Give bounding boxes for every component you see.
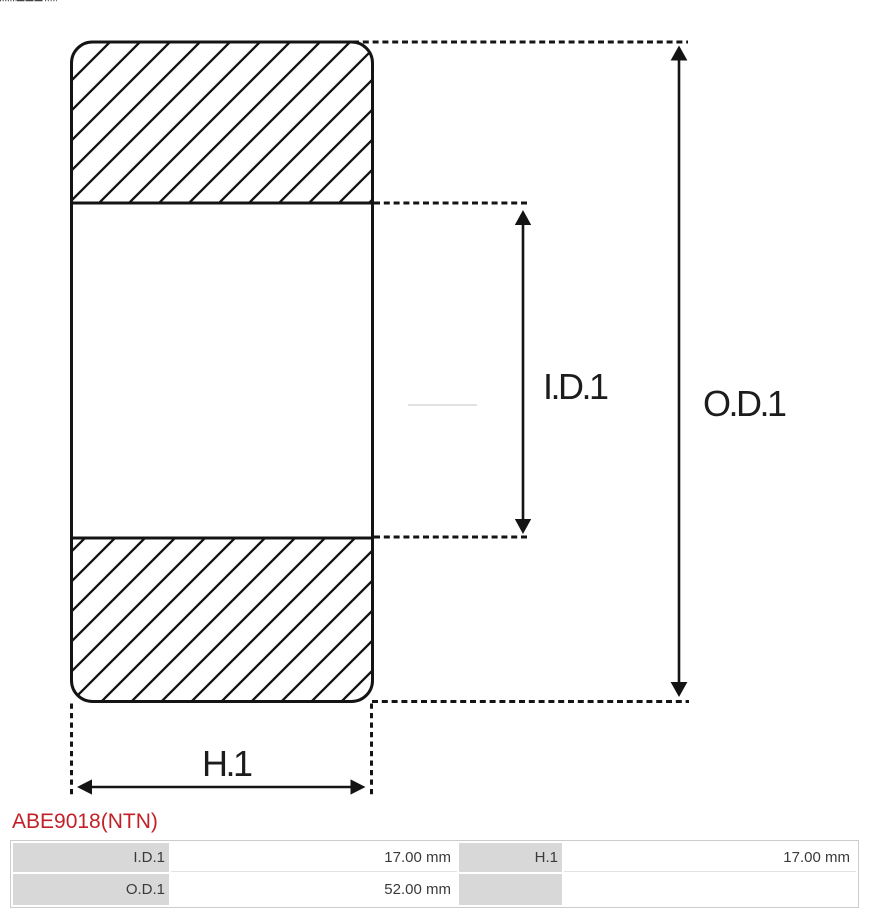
svg-text:I.D.1: I.D.1 <box>543 366 608 407</box>
svg-text:O.D.1: O.D.1 <box>703 383 786 424</box>
svg-text:H.1: H.1 <box>202 743 252 784</box>
